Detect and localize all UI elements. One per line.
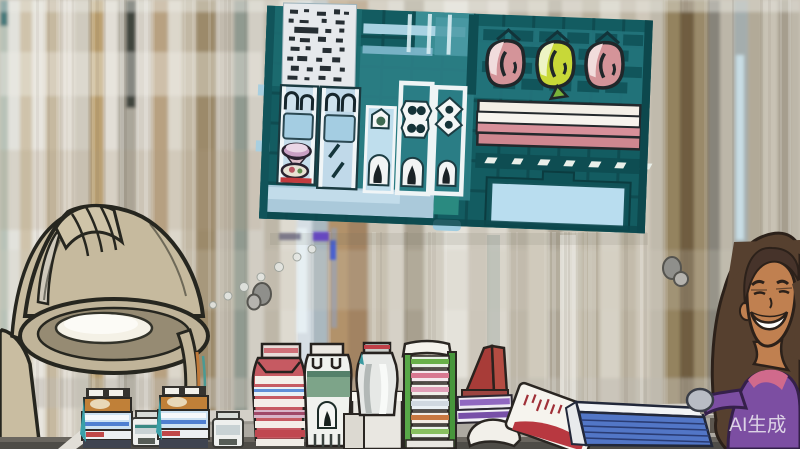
svg-text:AI生成: AI生成	[729, 414, 786, 436]
